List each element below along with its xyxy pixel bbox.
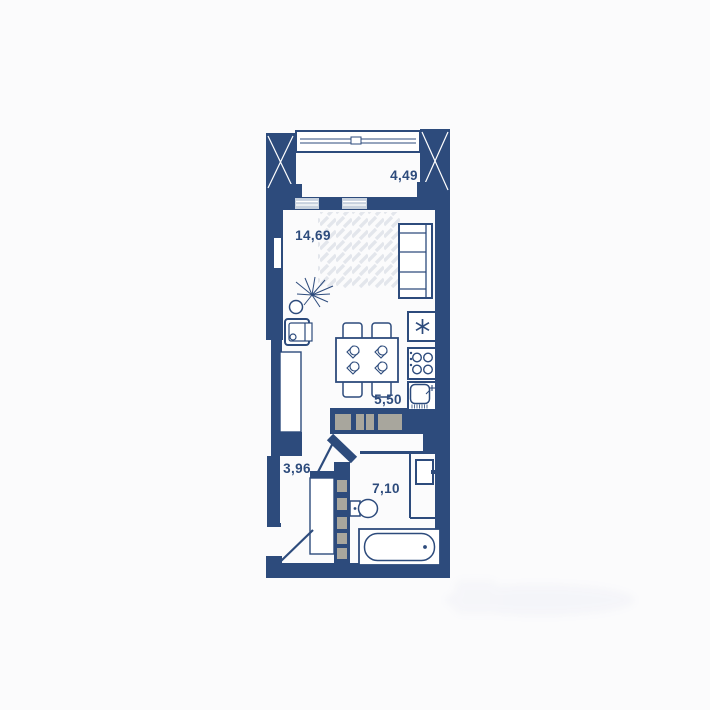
balcony-stub-left — [281, 184, 302, 198]
left-wall-hall — [267, 456, 280, 523]
shaft-niche — [410, 453, 437, 518]
door-swing-icon — [281, 530, 313, 561]
right-wall — [435, 193, 450, 578]
window-mullion — [351, 137, 361, 144]
fridge-icon — [408, 312, 436, 341]
balcony-room: 4,49 — [296, 131, 420, 183]
window-icon — [295, 198, 319, 209]
wardrobe-hangers-icon — [310, 478, 334, 554]
window-icon — [342, 198, 367, 209]
sofa-icon — [399, 224, 432, 298]
hallway-area-label: 3,96 — [283, 461, 311, 476]
wardrobe-hangers-icon — [280, 352, 301, 432]
dining-table-icon — [336, 338, 398, 382]
wardrobe-cap — [310, 471, 334, 478]
entry-door-jamb — [267, 523, 281, 527]
bath-corner-block — [423, 434, 437, 453]
toilet-icon — [350, 500, 378, 518]
balcony-area-label: 4,49 — [390, 168, 418, 183]
bath-partition — [334, 462, 350, 563]
stove-icon — [408, 348, 436, 379]
watermark — [445, 580, 635, 616]
bathroom: 7,10 — [337, 453, 440, 565]
kitchen-cabinets-icon — [335, 414, 402, 430]
rug-icon — [318, 212, 400, 288]
floor-plan-page: 4,49 14,69 — [0, 0, 710, 710]
door-swing-icon — [318, 437, 336, 472]
kitchen-sink-icon — [408, 382, 436, 410]
armchair-icon — [285, 319, 312, 345]
wall-niche — [274, 238, 281, 268]
balcony-stub-right — [417, 182, 437, 198]
left-wall-block — [271, 432, 302, 456]
bathroom-area-label: 7,10 — [372, 481, 400, 496]
water-heater-icon — [416, 460, 433, 484]
bathtub-icon — [359, 529, 440, 565]
floor-plan: 4,49 14,69 — [0, 0, 710, 710]
living-room-area-label: 14,69 — [295, 228, 331, 243]
kitchen-area-label: 5,50 — [374, 392, 402, 407]
